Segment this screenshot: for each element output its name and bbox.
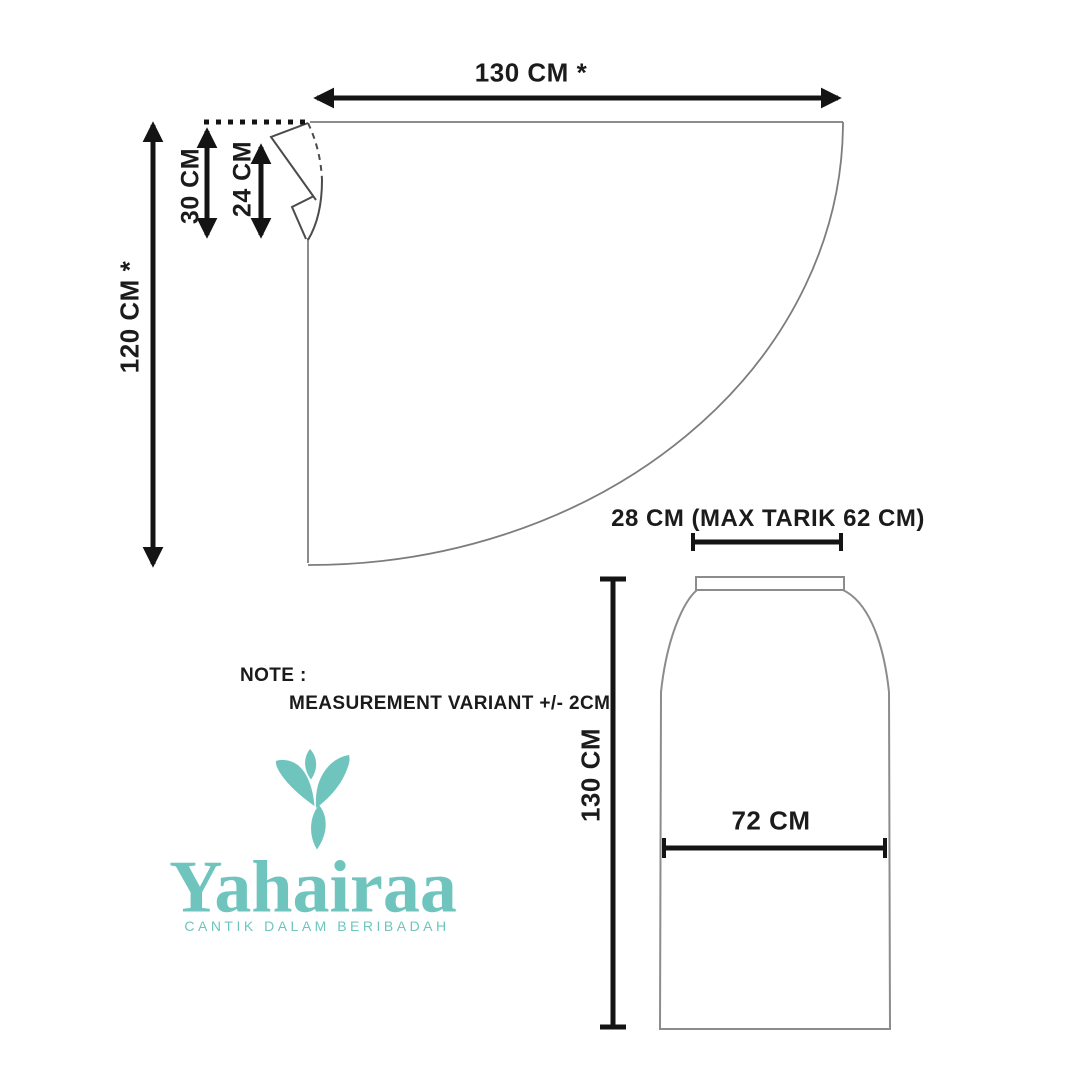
note-title: NOTE : [240, 665, 307, 687]
skirt-length-label: 130 CM [576, 728, 607, 822]
brand-flower-icon [276, 749, 350, 850]
face-opening-label: 24 CM [229, 141, 258, 217]
back-neck-label: 30 CM [177, 148, 206, 224]
note-body: MEASUREMENT VARIANT +/- 2CM [289, 693, 610, 715]
petal-bottom-icon [311, 805, 326, 850]
khimar-width-label: 130 CM * [475, 58, 587, 89]
skirt-waistband [696, 577, 844, 590]
skirt-pattern [600, 533, 890, 1029]
khimar-height-label: 120 CM * [115, 261, 146, 373]
khimar-hem-curve [308, 122, 843, 565]
upper-dart [271, 123, 316, 200]
measurement-sheet: 130 CM * 120 CM * 30 CM 24 CM 28 CM (MAX… [0, 0, 1080, 1080]
petal-right-icon [316, 755, 350, 808]
face-curve-dashed [308, 123, 322, 180]
skirt-waist-label: 28 CM (MAX TARIK 62 CM) [611, 505, 925, 533]
petal-top-icon [305, 749, 316, 780]
lower-dart [292, 196, 314, 239]
skirt-width-label: 72 CM [731, 806, 810, 837]
face-curve [308, 180, 322, 240]
diagram-layer [0, 0, 1080, 1080]
brand-tagline: CANTIK DALAM BERIBADAH [184, 918, 449, 934]
